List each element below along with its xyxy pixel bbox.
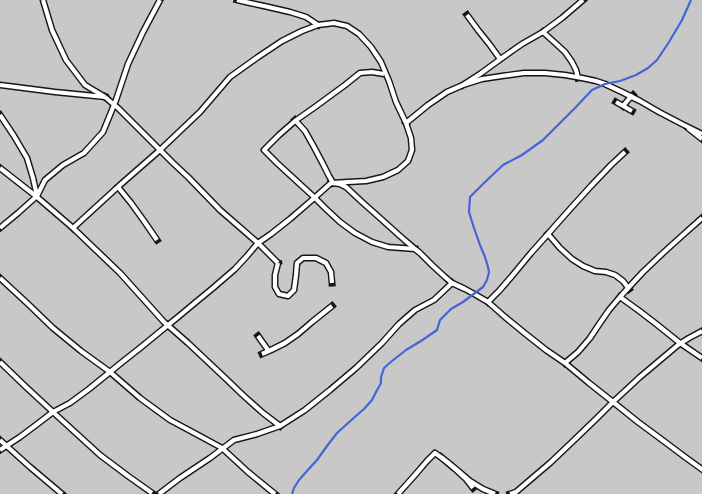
map-svg — [0, 0, 702, 494]
map-canvas[interactable] — [0, 0, 702, 494]
